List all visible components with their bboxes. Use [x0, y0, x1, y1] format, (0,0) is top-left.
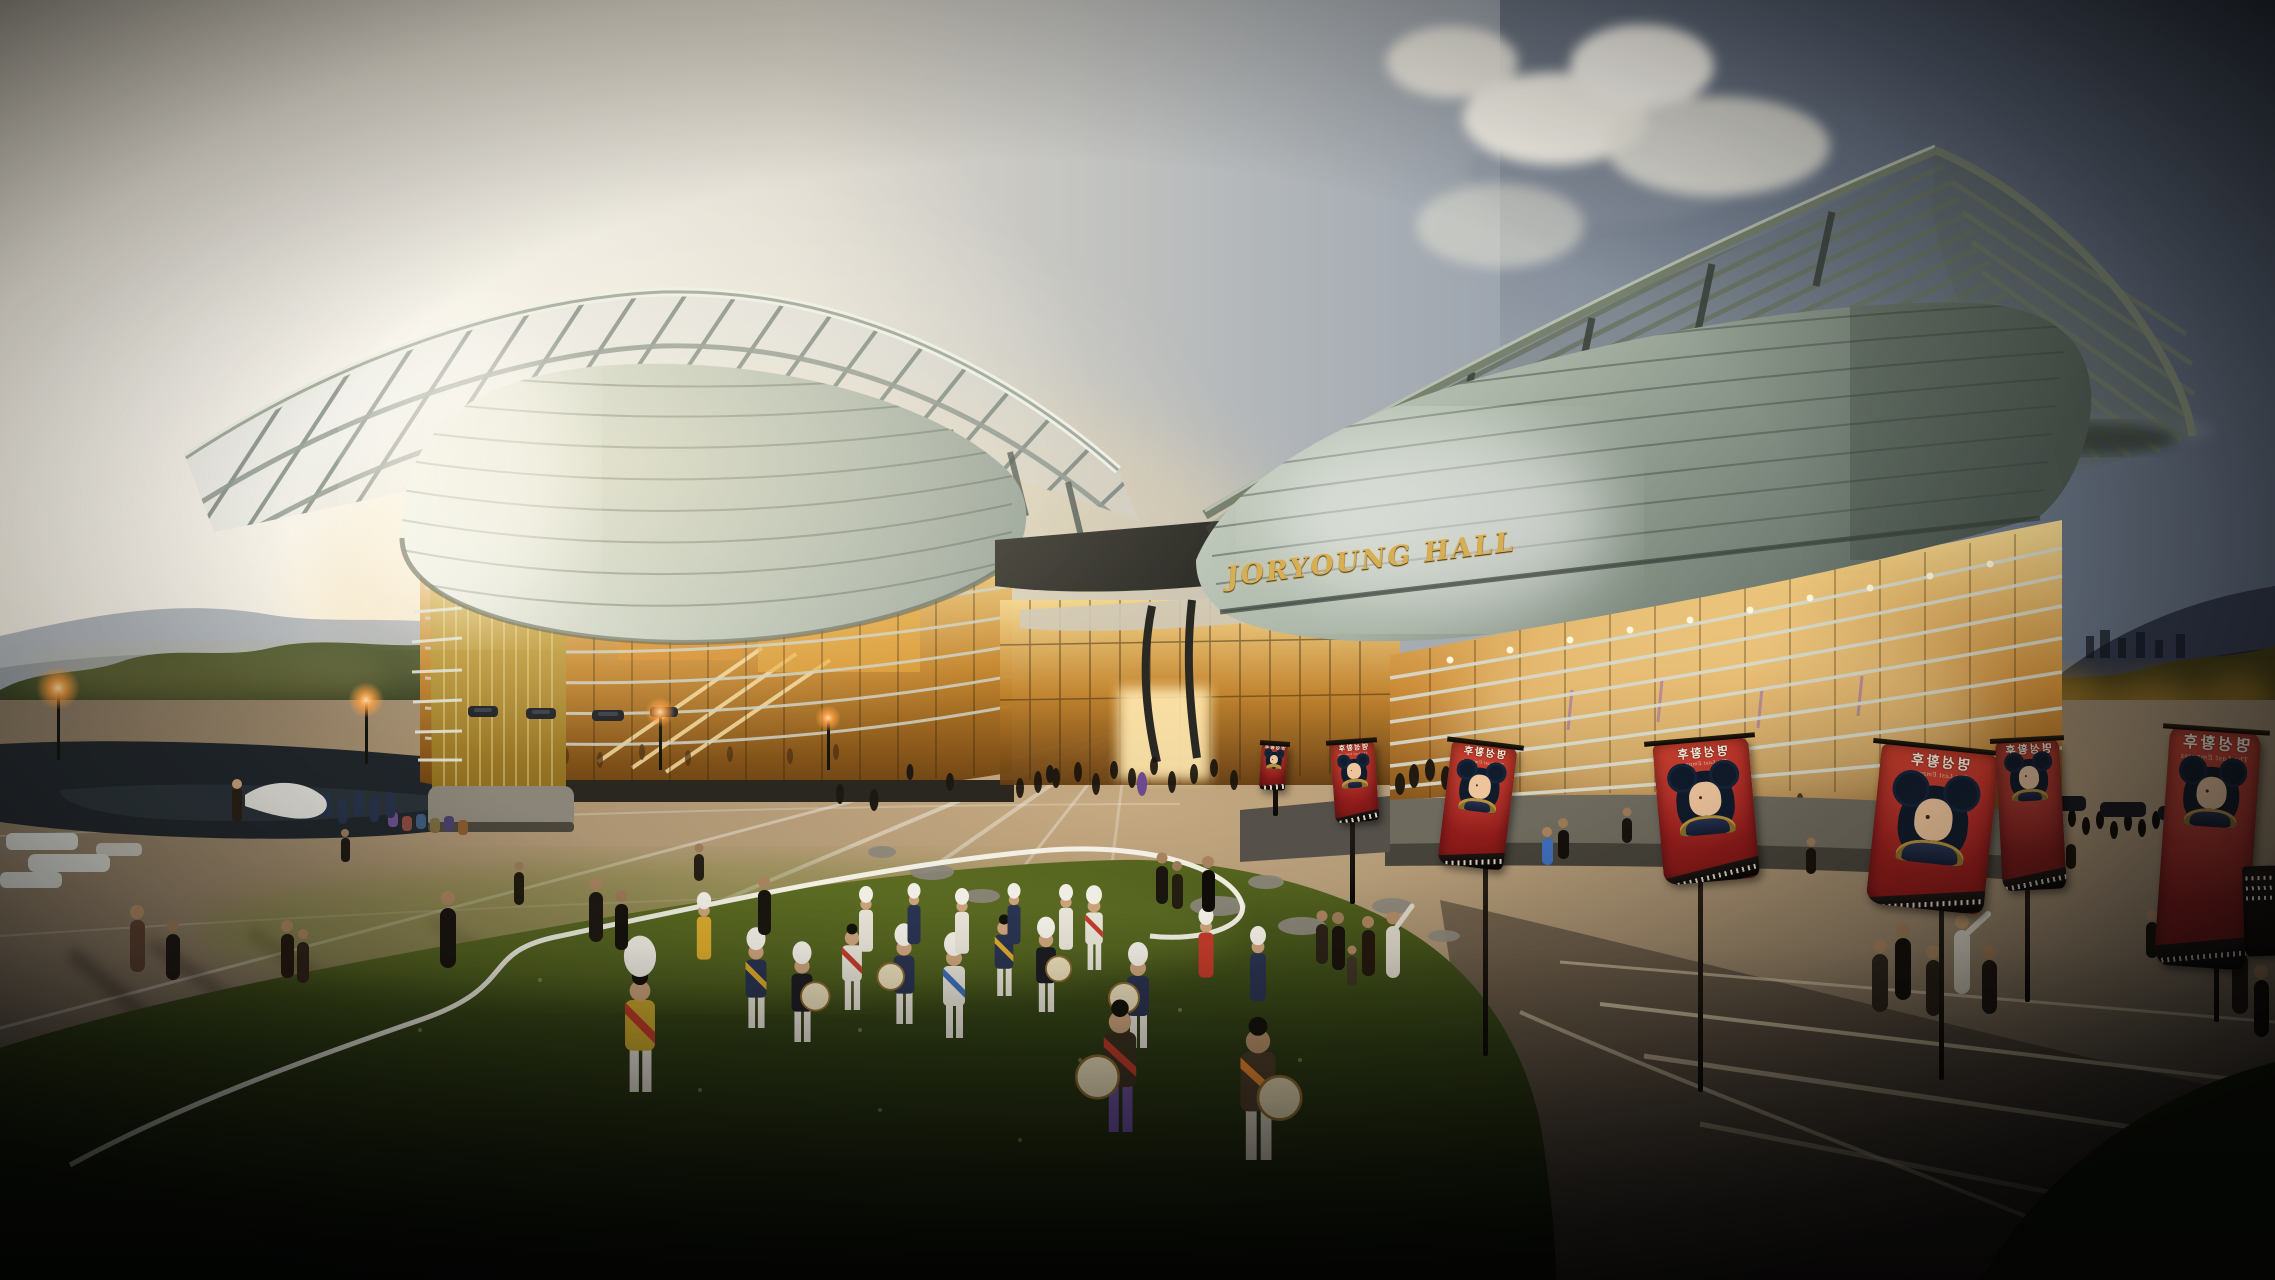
banner-cloth: 명성황후 The Last Empress [1330, 740, 1379, 823]
banner-cloth [2242, 865, 2275, 956]
rendering-canvas [0, 0, 2275, 1280]
banner-footer-band [1259, 784, 1288, 791]
empress-illustration [1265, 752, 1282, 770]
event-banner: 명성황후 [1262, 744, 1288, 790]
empress-illustration [1457, 765, 1502, 812]
banner-cloth: 명성황후 The Last Empress [1865, 742, 1999, 915]
scene: JORYOUNG HALL 명성황후 명성황후 The Last Empress… [0, 0, 2275, 1280]
banner-cloth: 명성황후 [1259, 743, 1288, 791]
event-banner: 명성황후 The Last Empress [1330, 742, 1374, 822]
empress-illustration [2182, 764, 2241, 827]
event-banner: 명성황후 The Last Empress [1452, 744, 1518, 868]
banner-cloth: 명성황후 [1995, 738, 2067, 891]
empress-illustration [1340, 758, 1368, 788]
event-sign-dark [2242, 866, 2275, 956]
banner-cloth: 명성황후 The Last Empress [1652, 736, 1760, 886]
banner-footer-band [1652, 853, 1760, 886]
event-banner: 명성황후 [1995, 740, 2059, 890]
empress-illustration [1674, 769, 1737, 836]
banner-cloth: 명성황후 The Last Empress [1437, 740, 1518, 871]
banner-footer-band [1995, 865, 2067, 892]
empress-illustration [2009, 758, 2050, 801]
event-banner: 명성황후 The Last Empress [1652, 740, 1748, 882]
banner-footer-band [1330, 807, 1379, 823]
empress-illustration [1894, 782, 1972, 865]
event-banner: 명성황후 The Last Empress [1882, 748, 2000, 910]
